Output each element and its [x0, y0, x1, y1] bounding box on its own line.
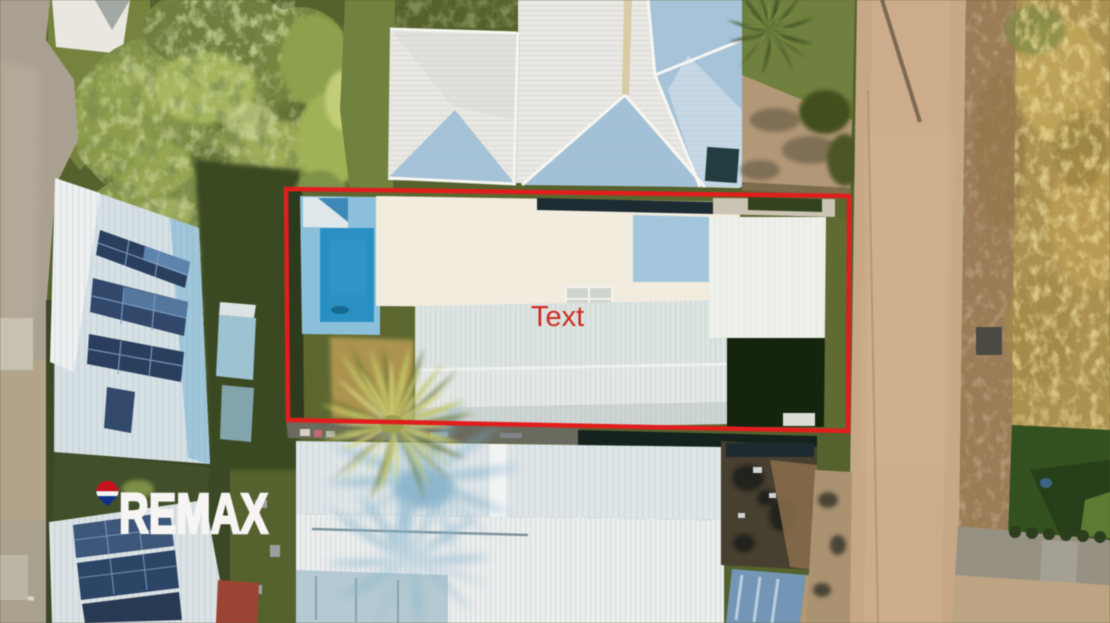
svg-text:Text: Text: [531, 301, 584, 333]
svg-text:REMAX: REMAX: [119, 482, 268, 546]
